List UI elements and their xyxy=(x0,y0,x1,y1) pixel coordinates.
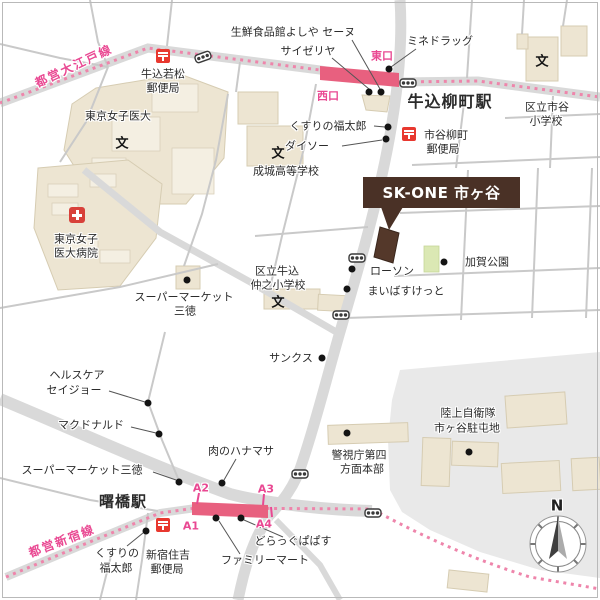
poi-label-ichigaya-elem-2: 小学校 xyxy=(530,116,563,127)
campus-block xyxy=(48,184,78,197)
campus-block xyxy=(172,148,214,194)
exit-west-label: 西口 xyxy=(317,91,339,102)
poi-dot-lawson xyxy=(349,266,356,273)
poi-label-seijoh-2: セイジョー xyxy=(47,385,102,396)
police-hq-building xyxy=(328,423,409,445)
exit-east-label: 東口 xyxy=(371,51,393,62)
poi-dot-fukutaro-south xyxy=(143,528,150,535)
poi-dot-police-hq xyxy=(344,430,351,437)
poi-label-santoku-north-1: スーパーマーケット xyxy=(135,292,234,303)
compass-rose xyxy=(530,516,586,572)
poi-label-maibasuketto: まいばすけっと xyxy=(368,286,445,297)
poi-dot-sunkus xyxy=(319,355,326,362)
road-minor xyxy=(563,0,567,26)
school-icon: 文 xyxy=(535,51,548,70)
hospital-cross-icon xyxy=(69,207,85,223)
school-icon: 文 xyxy=(271,292,284,311)
poi-dot-saizeriya xyxy=(366,89,373,96)
station-label-akebonobashi: 曙橋駅 xyxy=(99,495,147,510)
road-minor xyxy=(412,157,600,165)
jsdf-building xyxy=(452,441,499,467)
poi-label-nakano-elem-2: 仲之小学校 xyxy=(251,280,306,291)
traffic-signal-icon xyxy=(333,311,349,319)
poi-label-womens-hosp-2: 医大病院 xyxy=(54,248,98,259)
poi-label-womens-hosp-1: 東京女子 xyxy=(54,234,98,245)
map-base-layer xyxy=(0,0,600,600)
poi-dot-santoku-south xyxy=(176,479,183,486)
poi-dot-seine xyxy=(378,89,385,96)
exit-a3-tick xyxy=(263,494,264,505)
traffic-signal-icon xyxy=(292,470,308,478)
campus-block xyxy=(100,250,130,263)
station-label-ushigome-yanagicho: 牛込柳町駅 xyxy=(407,94,492,110)
poi-label-santoku-south: スーパーマーケット三徳 xyxy=(22,465,143,476)
jsdf-building xyxy=(421,438,451,487)
poi-label-wakamatsu-po-2: 郵便局 xyxy=(147,83,180,94)
poi-dot-mcdonalds xyxy=(156,431,163,438)
poi-label-police-hq-2: 方面本部 xyxy=(340,464,384,475)
poi-label-papasu: どらっぐぱぱす xyxy=(255,536,332,547)
seijo-high-building xyxy=(238,92,278,124)
poi-label-jsdf-1: 陸上自衛隊 xyxy=(441,408,496,419)
road-minor xyxy=(345,310,600,318)
poi-dot-papasu xyxy=(238,515,245,522)
poi-label-jsdf-2: 市ヶ谷駐屯地 xyxy=(434,423,500,434)
property-callout-tail xyxy=(381,207,403,230)
poi-label-lawson: ローソン xyxy=(370,266,414,277)
poi-label-fukutaro-south-2: 福太郎 xyxy=(100,563,133,574)
school-icon: 文 xyxy=(115,133,128,152)
exit-a3-label: A3 xyxy=(258,484,274,495)
poi-label-sumiyoshi-po-2: 郵便局 xyxy=(151,564,184,575)
poi-label-kaga-park: 加賀公園 xyxy=(465,257,509,268)
poi-dot-santoku-north xyxy=(184,277,191,284)
poi-label-santoku-north-2: 三徳 xyxy=(174,306,196,317)
poi-dot-minedrug xyxy=(386,66,393,73)
poi-label-yanagicho-po-2: 郵便局 xyxy=(427,144,460,155)
poi-label-nakano-elem-1: 区立牛込 xyxy=(255,266,299,277)
poi-label-seijoh-1: ヘルスケア xyxy=(50,370,105,381)
road-minor xyxy=(586,168,592,318)
poi-dot-daiso xyxy=(383,136,390,143)
property-name-label: SK-ONE 市ヶ谷 xyxy=(363,177,520,208)
poi-dot-hanamasa xyxy=(219,480,226,487)
poi-label-sumiyoshi-po-1: 新宿住吉 xyxy=(146,550,190,561)
poi-label-familymart: ファミリーマート xyxy=(221,555,309,566)
exit-a2-label: A2 xyxy=(193,483,209,494)
exit-a1-label: A1 xyxy=(183,521,199,532)
poi-label-seijo-high: 成城高等学校 xyxy=(253,166,319,177)
poi-label-police-hq-1: 警視庁第四 xyxy=(332,450,387,461)
road-minor xyxy=(167,0,172,46)
poi-label-sunkus: サンクス xyxy=(269,353,313,364)
exit-a4-tick xyxy=(271,507,272,517)
road-minor xyxy=(255,227,368,236)
poi-label-fukutaro-south-1: くすりの xyxy=(95,548,139,559)
poi-label-womens-univ: 東京女子医大 xyxy=(85,111,151,122)
post-office-icon xyxy=(156,518,170,532)
traffic-signal-icon xyxy=(349,254,365,262)
road-minor xyxy=(522,0,524,34)
post-office-icon xyxy=(402,127,416,141)
road-minor xyxy=(532,168,538,318)
station-side-building xyxy=(362,95,390,112)
ichigaya-elem-annex xyxy=(517,34,528,49)
jsdf-building xyxy=(571,457,600,490)
jsdf-building xyxy=(501,461,560,494)
poi-label-yoshiya: 生鮮食品館よしや セーヌ xyxy=(231,27,355,38)
map-canvas: 都営大江戸線 都営新宿線 生鮮食品館よしや セーヌ サイゼリヤ ミネドラッグ 東… xyxy=(0,0,600,600)
poi-label-saizeriya: サイゼリヤ xyxy=(281,46,336,57)
building-block xyxy=(561,26,587,56)
poi-dot-seijoh xyxy=(145,400,152,407)
building-block xyxy=(447,570,489,592)
poi-label-daiso: ダイソー xyxy=(285,141,329,152)
post-office-icon xyxy=(156,49,170,63)
poi-dot-kaga-park xyxy=(441,259,448,266)
road-minor xyxy=(236,62,240,92)
poi-dot-fukutaro-north xyxy=(385,124,392,131)
poi-label-hanamasa: 肉のハナマサ xyxy=(208,446,274,457)
kaga-park-area xyxy=(424,246,439,272)
school-icon: 文 xyxy=(271,143,284,162)
poi-label-mcdonalds: マクドナルド xyxy=(58,420,124,431)
poi-label-yanagicho-po-1: 市谷柳町 xyxy=(424,130,468,141)
poi-dot-maibasuketto xyxy=(344,286,351,293)
poi-label-fukutaro-north: くすりの福太郎 xyxy=(290,121,367,132)
compass-north-label: N xyxy=(551,499,564,514)
jsdf-building xyxy=(505,392,567,428)
poi-dot-familymart xyxy=(213,515,220,522)
poi-label-minedrug: ミネドラッグ xyxy=(407,36,473,47)
traffic-signal-icon xyxy=(400,79,416,87)
exit-a4-label: A4 xyxy=(256,519,272,530)
poi-label-ichigaya-elem-1: 区立市谷 xyxy=(525,102,569,113)
traffic-signal-icon xyxy=(365,509,381,517)
property-building xyxy=(374,227,399,263)
poi-dot-jsdf xyxy=(466,449,473,456)
poi-label-wakamatsu-po-1: 牛込若松 xyxy=(141,69,185,80)
